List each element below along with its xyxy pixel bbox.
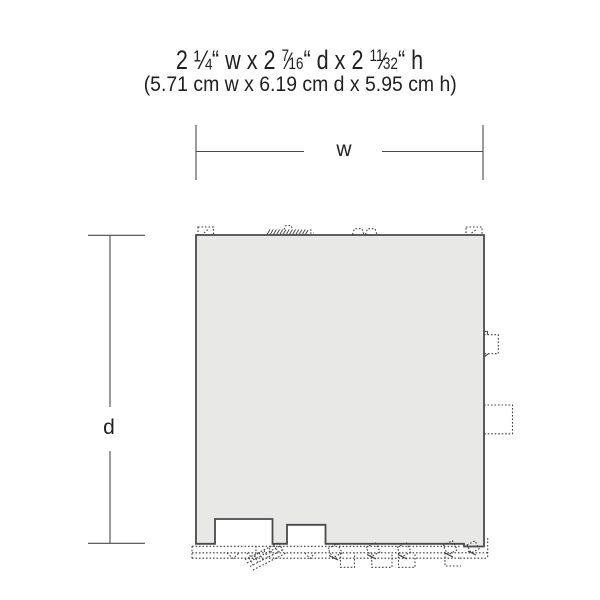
svg-text:d: d (103, 416, 115, 439)
svg-text:w: w (335, 138, 352, 161)
